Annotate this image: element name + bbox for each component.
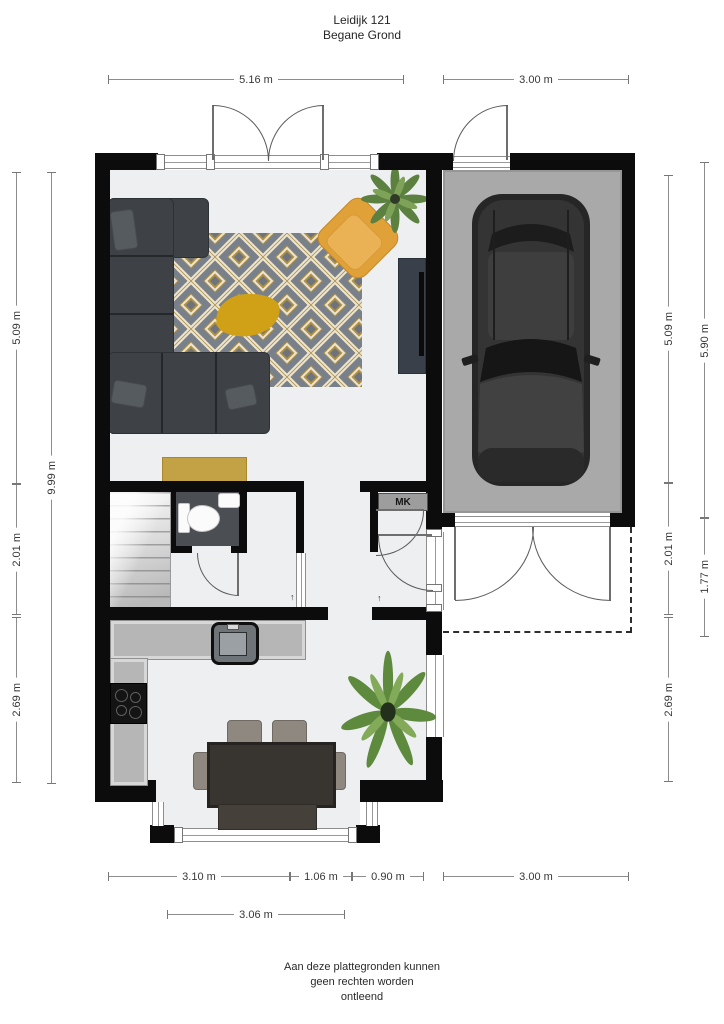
dimension: 2.69 m	[12, 617, 21, 783]
dining-bench	[218, 804, 317, 830]
disclaimer-line: geen rechten worden	[0, 976, 724, 988]
kitchen-sink	[211, 622, 259, 665]
dimension: 3.00 m	[443, 75, 629, 84]
dimension: 1.77 m	[700, 517, 709, 637]
bay-window-front	[174, 828, 356, 842]
dimension: 2.69 m	[664, 617, 673, 782]
dimension: 3.10 m	[108, 872, 290, 881]
faucet-icon	[227, 624, 239, 630]
window-post	[174, 827, 183, 843]
level-arrow: ↑	[377, 593, 382, 603]
window-post	[370, 154, 379, 170]
wall	[108, 607, 328, 620]
dining-table	[207, 742, 336, 808]
dimension: 2.01 m	[664, 483, 673, 615]
dimension: 5.09 m	[664, 175, 673, 483]
garage-back-door-swing	[453, 105, 508, 161]
kitchen-counter-top	[110, 620, 306, 660]
wall	[610, 513, 635, 527]
wall	[95, 153, 110, 802]
staircase	[110, 492, 171, 607]
wall	[296, 492, 304, 553]
burner-icon	[116, 705, 127, 716]
covered-area-outline	[630, 527, 632, 633]
dimension: 5.09 m	[12, 172, 21, 484]
patio-door-swing	[213, 105, 269, 161]
bay-window-right	[366, 802, 378, 826]
burner-icon	[115, 689, 128, 702]
toilet-sink	[218, 493, 240, 508]
garage-door-swing	[532, 527, 611, 601]
garage-door-threshold	[455, 516, 610, 527]
wall	[360, 481, 440, 492]
dimension: 1.06 m	[290, 872, 352, 881]
tv	[419, 272, 424, 356]
wall	[426, 170, 442, 532]
wall	[108, 481, 304, 492]
wall	[231, 546, 247, 553]
disclaimer-line: ontleend	[0, 991, 724, 1003]
dimension: 3.06 m	[167, 910, 345, 919]
wall	[440, 513, 455, 527]
wall	[150, 825, 174, 843]
bay-window-left	[152, 802, 164, 826]
dimension: 2.01 m	[12, 484, 21, 615]
window-post	[156, 154, 165, 170]
patio-door-swing	[268, 105, 324, 161]
wall	[360, 780, 443, 802]
wall	[239, 492, 247, 553]
dimension: 5.90 m	[700, 162, 709, 519]
dimension: 5.16 m	[108, 75, 404, 84]
wall	[377, 153, 453, 170]
plant-icon	[346, 662, 430, 762]
car	[466, 190, 596, 490]
wall	[168, 546, 192, 553]
hall-glass-panel	[296, 553, 306, 607]
covered-area-outline	[443, 631, 632, 633]
garage-door-swing	[455, 527, 534, 601]
wall	[510, 153, 635, 170]
level-arrow: ↑	[290, 592, 295, 602]
plan-title-address: Leidijk 121	[0, 13, 724, 27]
plant-icon	[362, 168, 428, 230]
dimension: 9.99 m	[47, 172, 56, 784]
wall	[356, 825, 380, 843]
burner-icon	[129, 706, 142, 719]
meter-closet-label: MK	[395, 497, 411, 508]
cooktop	[110, 683, 147, 724]
dimension: 3.00 m	[443, 872, 629, 881]
burner-icon	[130, 692, 141, 703]
disclaimer-line: Aan deze plattegronden kunnen	[0, 961, 724, 973]
wall	[622, 153, 635, 527]
floorplan-page: Leidijk 121 Begane Grond	[0, 0, 724, 1024]
dimension: 0.90 m	[352, 872, 424, 881]
plan-title-floor: Begane Grond	[0, 28, 724, 42]
door-frame-post	[426, 604, 442, 612]
sink-basin	[219, 632, 247, 656]
window-post	[348, 827, 357, 843]
